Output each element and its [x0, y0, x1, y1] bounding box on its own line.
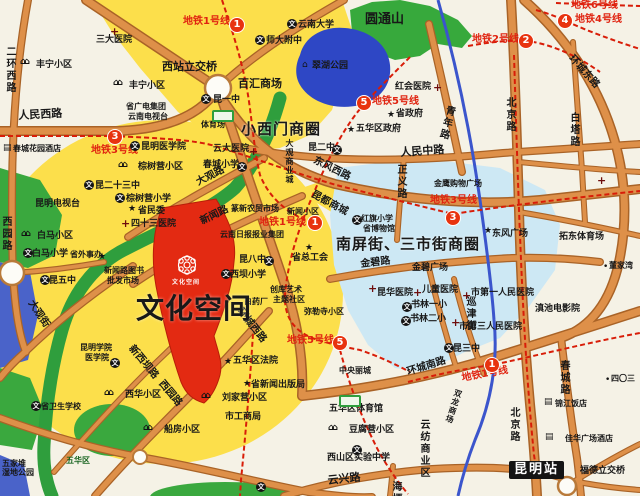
- poi-label: 白马小学: [32, 250, 68, 259]
- school-icon: 文: [352, 215, 362, 225]
- kunming-station-label: 昆明站: [509, 461, 564, 479]
- poi-label: 红会医院: [395, 83, 431, 92]
- poi-label: 省卫生学校: [41, 403, 81, 411]
- kunming-area-map: 二环西路人民西路三大医院丰宁小区丰宁小区地铁1号线西站立交桥百汇商场昆一中体育场…: [0, 0, 640, 496]
- road-label: 北京路: [504, 97, 514, 133]
- metro-line-label: 地铁2号线: [472, 35, 519, 45]
- poi-label: 棕树营小区: [138, 163, 183, 172]
- poi-label: 董家湾: [609, 262, 633, 270]
- poi-label: 省广电集团: [126, 103, 166, 111]
- poi-label: 昆八中: [239, 256, 266, 265]
- road-label: 人民西路: [18, 108, 63, 121]
- school-icon: 文: [110, 358, 120, 368]
- poi-label: 省博物馆: [363, 225, 395, 233]
- school-icon: 文: [401, 316, 411, 326]
- poi-label: 豆腐营小区: [349, 426, 394, 435]
- stadium-icon: [339, 395, 361, 407]
- poi-label: 云南大学: [298, 21, 334, 30]
- poi-label: 东风广场: [492, 230, 528, 239]
- poi-label: 白马小区: [37, 232, 73, 241]
- poi-label: 西坝小学: [230, 271, 266, 280]
- road-label: 人民中路: [400, 144, 445, 158]
- poi-label: 创库艺术: [270, 286, 302, 294]
- metro-line-1-badge: 1: [485, 358, 499, 372]
- building-icon: ▤: [544, 398, 553, 407]
- residential-icon: ⌂⌂: [20, 58, 27, 67]
- road-label: 大观商业城: [285, 139, 293, 184]
- school-icon: 文: [23, 248, 33, 258]
- poi-label: 福德立交桥: [580, 467, 625, 476]
- poi-label: 师大附中: [266, 37, 302, 46]
- metro-line-label: 地铁1号线: [183, 17, 230, 27]
- poi-label: 西山区实验中学: [327, 454, 390, 463]
- district-title: 小西门商圈: [241, 122, 321, 137]
- school-icon: 文: [40, 275, 50, 285]
- dot-icon: •: [605, 376, 610, 385]
- road-label: 二环西路: [4, 46, 14, 94]
- residential-icon: ⌂⌂: [143, 424, 150, 433]
- poi-label: 船房小区: [164, 426, 200, 435]
- poi-label: 昆一中: [213, 96, 240, 105]
- metro-line-1-badge: 1: [230, 18, 244, 32]
- poi-label: 棕树营小学: [126, 195, 171, 204]
- poi-label: 书林二小: [410, 315, 446, 324]
- poi-label: 昆明学院: [80, 344, 112, 352]
- poi-label: 主题社区: [273, 296, 305, 304]
- government-star-icon: ★: [224, 358, 232, 367]
- poi-label: 四十三医院: [131, 220, 176, 229]
- hospital-cross-icon: +: [451, 317, 460, 328]
- poi-label: 刘家营小区: [222, 394, 267, 403]
- metro-line-2-badge: 2: [519, 34, 533, 48]
- school-icon: 文: [115, 193, 125, 203]
- poi-label: 医学院: [85, 354, 109, 362]
- stadium-icon: [212, 110, 234, 122]
- school-icon: 文: [256, 482, 266, 492]
- metro-line-label: 地铁5号线: [372, 97, 419, 107]
- poi-label: 春城花园酒店: [13, 145, 61, 153]
- road-label: 云纺商业区: [418, 419, 428, 479]
- residential-icon: ⌂⌂: [113, 79, 120, 88]
- metro-line-1-badge: 1: [308, 216, 322, 230]
- poi-label: 金碧广场: [412, 264, 448, 273]
- poi-label: 省政府: [396, 110, 423, 119]
- hospital-cross-icon: +: [597, 175, 606, 186]
- poi-label: 批发市场: [107, 277, 139, 285]
- residential-icon: ⌂⌂: [201, 392, 208, 401]
- poi-label: 翠湖公园: [312, 62, 348, 71]
- poi-label: 儿童医院: [422, 286, 458, 295]
- road-label: 西园路: [0, 216, 10, 252]
- poi-label: 昆二十三中: [95, 182, 140, 191]
- poi-label: 篆新农贸市场: [231, 205, 279, 213]
- poi-label: 红旗小学: [361, 215, 393, 223]
- poi-label: 省总工会: [292, 254, 328, 263]
- poi-label: 书林一小: [411, 301, 447, 310]
- school-icon: 文: [287, 19, 297, 29]
- interchange: [133, 450, 147, 464]
- poi-label: 省新闻出版局: [251, 381, 305, 390]
- park-label: 圆通山: [365, 13, 404, 26]
- hospital-cross-icon: +: [121, 218, 130, 229]
- road-label: 北京路: [508, 407, 518, 443]
- metro-line-4-badge: 4: [558, 14, 572, 28]
- metro-line-label: 地铁5号线: [287, 336, 334, 346]
- school-icon: 文: [332, 145, 342, 155]
- metro-line-5-badge: 5: [333, 336, 347, 350]
- building-icon: ▤: [3, 144, 12, 153]
- poi-label: 佳华广场酒店: [565, 435, 613, 443]
- metro-line-label: 地铁1号线: [259, 218, 306, 228]
- poi-label: 云南日报报业集团: [220, 231, 284, 239]
- district-title: 南屏街、三市街商圈: [336, 237, 480, 252]
- road-label: 正义路: [395, 164, 405, 200]
- government-star-icon: ★: [484, 227, 492, 236]
- school-icon: 文: [130, 141, 140, 151]
- road-label: 百汇商场: [238, 78, 282, 89]
- poi-label: 拓东体育场: [559, 233, 604, 242]
- government-star-icon: ★: [128, 205, 136, 214]
- map-canvas: [0, 0, 640, 496]
- poi-label: 新闻小区: [287, 208, 319, 216]
- poi-label: 云大医院: [213, 145, 249, 154]
- school-icon: 文: [84, 180, 94, 190]
- poi-label: 五华区法院: [233, 357, 278, 366]
- hospital-cross-icon: +: [249, 146, 258, 157]
- poi-label: 湿地公园: [2, 469, 34, 477]
- pavilion-icon: ⌂: [302, 61, 308, 70]
- poi-label: 市第三人民医院: [459, 323, 522, 332]
- poi-label: 昆五中: [49, 277, 76, 286]
- metro-line-label: 地铁3号线: [430, 196, 477, 206]
- poi-label: 五华区政府: [356, 125, 401, 134]
- school-icon: 文: [402, 302, 412, 312]
- fude-interchange: [558, 477, 576, 495]
- poi-label: 丰宁小区: [129, 82, 165, 91]
- government-star-icon: ★: [305, 244, 313, 253]
- school-icon: 文: [201, 94, 211, 104]
- poi-label: 昆明医学院: [141, 143, 186, 152]
- hospital-cross-icon: +: [413, 287, 422, 298]
- government-star-icon: ★: [243, 380, 251, 389]
- residential-icon: ⌂⌂: [328, 424, 335, 433]
- poi-label: 省民委: [138, 207, 165, 216]
- road-label: 云兴路: [327, 472, 361, 486]
- poi-label: 市工商局: [225, 413, 261, 422]
- poi-label: 云南电视台: [128, 113, 168, 121]
- road-label: 春城路: [558, 360, 568, 396]
- school-icon: 文: [237, 162, 247, 172]
- road-label: 白塔路: [568, 112, 578, 148]
- poi-label: 丰宁小区: [36, 61, 72, 70]
- poi-label: 体育场: [201, 121, 225, 129]
- poi-label: 弥勒寺小区: [304, 308, 344, 316]
- project-logo-label: 文化空间: [172, 280, 200, 286]
- hospital-cross-icon: +: [110, 26, 119, 37]
- poi-label: 西华小区: [125, 391, 161, 400]
- poi-label: 五家堆: [2, 460, 26, 468]
- poi-label: 锦江饭店: [555, 400, 587, 408]
- poi-label: 昆华医院: [377, 289, 413, 298]
- school-icon: 文: [255, 35, 265, 45]
- school-icon: 文: [352, 445, 362, 455]
- metro-line-5-badge: 5: [357, 96, 371, 110]
- hospital-cross-icon: +: [462, 290, 471, 301]
- metro-line-label: 地铁4号线: [575, 15, 622, 25]
- residential-icon: ⌂⌂: [104, 389, 111, 398]
- road-label: 西站立交桥: [162, 61, 217, 72]
- school-icon: 文: [221, 269, 231, 279]
- poi-label: 四〇三: [611, 375, 635, 383]
- residential-icon: ⌂⌂: [118, 161, 125, 170]
- poi-label: 中央丽城: [339, 367, 371, 375]
- school-icon: 文: [264, 256, 274, 266]
- interchange: [0, 261, 24, 285]
- metro-line-label: 地铁6号线: [571, 1, 618, 11]
- residential-icon: ⌂⌂: [21, 230, 28, 239]
- poi-label: 昆二中: [308, 144, 335, 153]
- poi-label: 市第一人民医院: [471, 289, 534, 298]
- metro-line-3-badge: 3: [108, 130, 122, 144]
- building-icon: ▤: [545, 433, 554, 442]
- dot-icon: •: [603, 263, 608, 272]
- district-label: 五华区: [66, 457, 90, 465]
- school-icon: 文: [31, 401, 41, 411]
- poi-label: 昆三中: [453, 345, 480, 354]
- hospital-cross-icon: +: [368, 283, 377, 294]
- project-title: 文化空间: [136, 295, 252, 323]
- metro-line-3-badge: 3: [446, 211, 460, 225]
- hospital-cross-icon: +: [433, 82, 442, 93]
- government-star-icon: ★: [387, 111, 395, 120]
- poi-label: 昆明电视台: [35, 200, 80, 209]
- government-star-icon: ★: [347, 126, 355, 135]
- poi-label: 金鹰购物广场: [434, 180, 482, 188]
- poi-label: 滇池电影院: [535, 305, 580, 314]
- poi-label: 新闻路图书: [104, 267, 144, 275]
- government-star-icon: ★: [98, 253, 106, 262]
- school-icon: 文: [444, 343, 454, 353]
- road-label: 海埂路: [390, 481, 400, 496]
